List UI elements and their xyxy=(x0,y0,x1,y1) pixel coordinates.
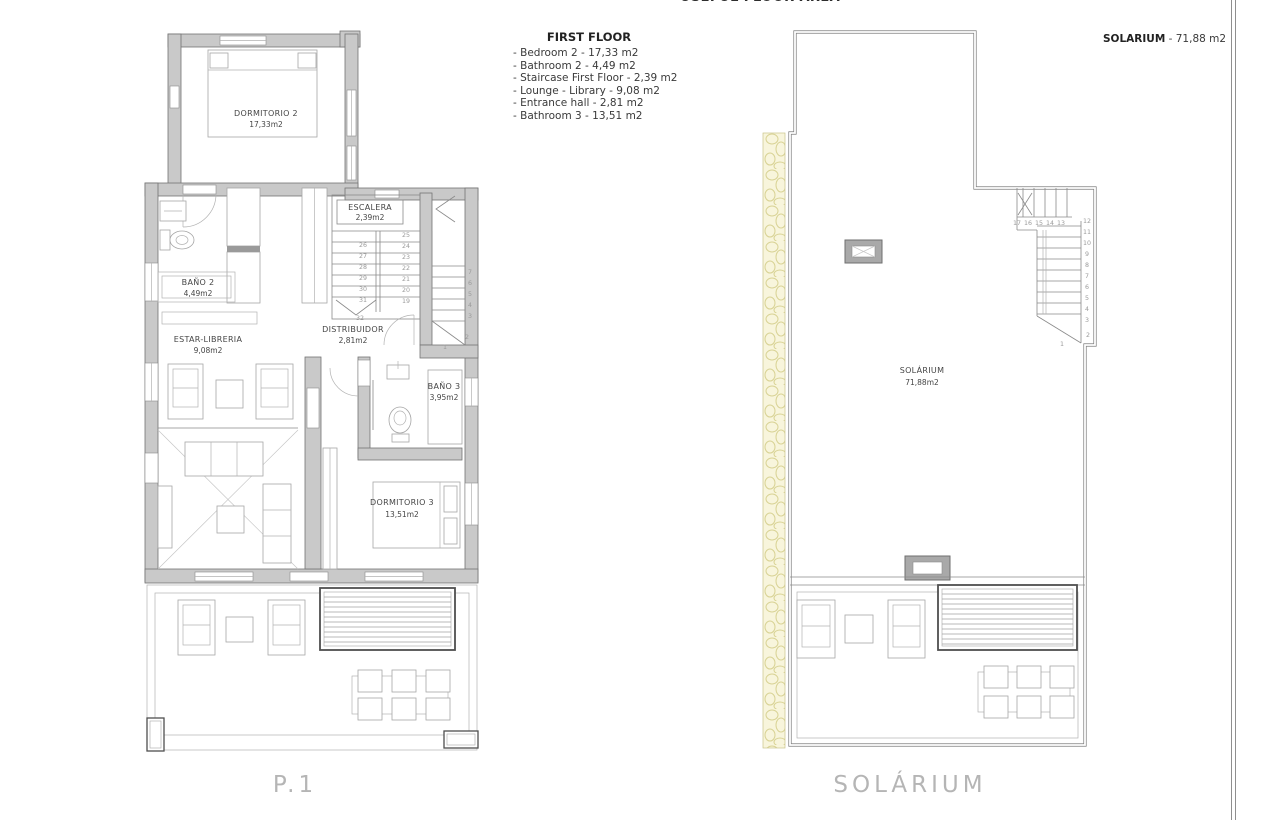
stair-number-27: 27 xyxy=(359,253,367,260)
legend-item: - Entrance hall - 2,81 m2 xyxy=(513,97,763,110)
room-label-escalera: ESCALERA xyxy=(348,203,392,212)
wardrobe xyxy=(227,188,260,246)
stair-numbers-right: 25242322212019 xyxy=(402,232,410,305)
room-area-dormitorio3: 13,51m2 xyxy=(385,510,419,519)
stair-number-5: 5 xyxy=(468,291,472,298)
stair-number-9: 9 xyxy=(1085,251,1089,258)
room-label-dormitorio3: DORMITORIO 3 xyxy=(370,498,434,507)
side-table xyxy=(216,380,243,408)
room-label-bano3: BAÑO 3 xyxy=(428,381,461,391)
stair-number-32: 32 xyxy=(356,315,364,322)
sheet-border-line xyxy=(1231,0,1236,820)
stair-numbers-top: 1716151413 xyxy=(1013,220,1065,227)
window xyxy=(375,190,399,198)
stair-number-6: 6 xyxy=(468,280,472,287)
floor-plan-sheet: USEFUL FLOOR AREA FIRST FLOOR - Bedroom … xyxy=(0,0,1280,820)
room-area-distribuidor: 2,81m2 xyxy=(339,336,368,345)
stair-number-3: 3 xyxy=(468,313,472,320)
stair-number-29: 29 xyxy=(359,275,367,282)
pillow xyxy=(444,486,457,512)
stair-number-30: 30 xyxy=(359,286,367,293)
dining-set xyxy=(352,670,450,720)
sofa xyxy=(185,442,263,476)
stair-number-3: 3 xyxy=(1085,317,1089,324)
legend-item: - Lounge - Library - 9,08 m2 xyxy=(513,85,763,98)
plan-caption-p1: P.1 xyxy=(235,772,355,798)
room-area-solarium: 71,88m2 xyxy=(905,378,939,387)
legend-item: - Bathroom 3 - 13,51 m2 xyxy=(513,110,763,123)
door-arc xyxy=(384,315,414,345)
stair-number-13: 13 xyxy=(1057,220,1065,227)
legend-item: - Bathroom 2 - 4,49 m2 xyxy=(513,60,763,73)
stair-number-10: 10 xyxy=(1083,240,1091,247)
stair-number-2: 2 xyxy=(465,334,469,341)
stair-number-1: 1 xyxy=(1060,341,1064,348)
legend-title: FIRST FLOOR xyxy=(513,30,665,44)
legend-item: - Staircase First Floor - 2,39 m2 xyxy=(513,72,763,85)
stair-number-21: 21 xyxy=(402,276,410,283)
door-opening xyxy=(358,360,370,386)
stair-number-14: 14 xyxy=(1046,220,1054,227)
legend-items: - Bedroom 2 - 17,33 m2 - Bathroom 2 - 4,… xyxy=(513,47,763,123)
room-area-bano2: 4,49m2 xyxy=(184,289,213,298)
stair-number-26: 26 xyxy=(359,242,367,249)
stair-number-12: 12 xyxy=(1083,218,1091,225)
window xyxy=(170,86,179,108)
room-area-estar: 9,08m2 xyxy=(194,346,223,355)
deck xyxy=(938,585,1077,650)
door-arc xyxy=(330,368,358,396)
solarium-stairs xyxy=(1017,188,1081,343)
side-table xyxy=(845,615,873,643)
pillar xyxy=(147,718,164,751)
armchair xyxy=(256,364,293,419)
side-stair-treads xyxy=(432,196,465,345)
room-area-escalera: 2,39m2 xyxy=(356,213,385,222)
door-arc xyxy=(183,194,216,227)
legend-item: - Bedroom 2 - 17,33 m2 xyxy=(513,47,763,60)
dining-set xyxy=(978,666,1074,718)
armchair xyxy=(797,600,835,658)
chimney xyxy=(845,240,882,263)
stair-number-5: 5 xyxy=(1085,295,1089,302)
stair-number-28: 28 xyxy=(359,264,367,271)
stair-number-8: 8 xyxy=(1085,262,1089,269)
toilet-tank xyxy=(392,434,409,442)
wardrobe xyxy=(227,252,260,303)
room-area-bano3: 3,95m2 xyxy=(430,393,459,402)
stair-number-19: 19 xyxy=(402,298,410,305)
pillow xyxy=(444,518,457,544)
stair-number-11: 11 xyxy=(1083,229,1091,236)
wall xyxy=(420,345,478,358)
pillow xyxy=(210,53,228,68)
window xyxy=(145,453,158,483)
wall xyxy=(168,34,181,186)
door-opening xyxy=(307,388,319,428)
room-label-bano2: BAÑO 2 xyxy=(182,277,215,287)
plan-caption-solarium: SOLÁRIUM xyxy=(800,772,1020,798)
wall xyxy=(345,188,478,200)
bench xyxy=(158,486,172,548)
shelf xyxy=(162,312,257,324)
solarium-floor-plan: SOLÁRIUM 71,88m2 1716151413 121110987654… xyxy=(740,25,1140,765)
wall xyxy=(358,448,462,460)
stair-number-24: 24 xyxy=(402,243,410,250)
window xyxy=(290,572,328,581)
armchair xyxy=(888,600,925,658)
stair-number-4: 4 xyxy=(468,302,472,309)
stair-numbers-left: 262728293031 xyxy=(359,242,367,304)
toilet-tank xyxy=(160,230,170,250)
armchair xyxy=(268,600,305,655)
sofa xyxy=(263,484,291,563)
stair-number-20: 20 xyxy=(402,287,410,294)
pillow xyxy=(298,53,316,68)
stair-number-25: 25 xyxy=(402,232,410,239)
chimney xyxy=(905,556,950,580)
room-label-distribuidor: DISTRIBUIDOR xyxy=(322,325,384,334)
solarium-legend-value: - 71,88 m2 xyxy=(1165,33,1226,45)
side-table xyxy=(226,617,253,642)
stair-number-22: 22 xyxy=(402,265,410,272)
stone-wall-strip xyxy=(763,133,785,748)
stair-number-16: 16 xyxy=(1024,220,1032,227)
room-label-solarium: SOLÁRIUM xyxy=(900,364,945,375)
stair-number-17: 17 xyxy=(1013,220,1021,227)
armchair xyxy=(178,600,215,655)
stair-number-31: 31 xyxy=(359,297,367,304)
stair-number-4: 4 xyxy=(1085,306,1089,313)
side-table xyxy=(217,506,244,533)
room-label-dormitorio2: DORMITORIO 2 xyxy=(234,109,298,118)
p1-floor-plan: DORMITORIO 2 17,33m2 BAÑO 2 4,49m2 ESCAL… xyxy=(140,28,485,758)
pillar xyxy=(444,731,478,748)
stair-number-23: 23 xyxy=(402,254,410,261)
wall xyxy=(420,193,432,345)
stair-number-15: 15 xyxy=(1035,220,1043,227)
stair-numbers-right: 1211109876543 xyxy=(1083,218,1091,324)
toilet xyxy=(170,231,194,249)
stair-number-7: 7 xyxy=(468,269,472,276)
deck xyxy=(320,588,455,650)
first-floor-legend: FIRST FLOOR - Bedroom 2 - 17,33 m2 - Bat… xyxy=(513,30,763,123)
wardrobe-divider xyxy=(227,246,260,252)
stair-number-1: 1 xyxy=(443,344,447,351)
stair-number-6: 6 xyxy=(1085,284,1089,291)
room-label-estar: ESTAR-LIBRERIA xyxy=(174,335,243,344)
stair-number-7: 7 xyxy=(1085,273,1089,280)
room-area-dormitorio2: 17,33m2 xyxy=(249,120,283,129)
door-opening xyxy=(183,185,216,194)
sheet-title: USEFUL FLOOR AREA xyxy=(640,0,880,5)
stair-number-2: 2 xyxy=(1086,332,1090,339)
